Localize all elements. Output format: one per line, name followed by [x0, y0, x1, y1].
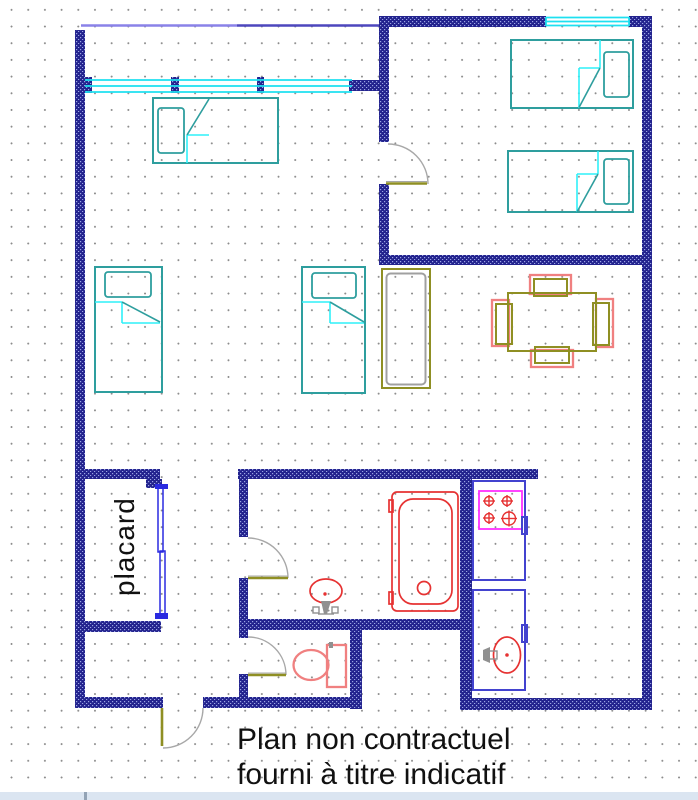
wardrobe-outline	[382, 269, 430, 388]
blanket-fold	[577, 174, 598, 212]
faucet-handle-right	[332, 607, 338, 613]
wall-right	[642, 16, 652, 710]
closet-door-cap-bottom	[155, 613, 168, 619]
bed-middle-left	[95, 267, 162, 392]
wall-left	[75, 30, 85, 708]
pillow	[312, 273, 356, 298]
kitchen-upper-unit	[473, 481, 527, 580]
dining-set	[492, 275, 613, 367]
wall-mid-left	[85, 469, 160, 479]
bed-top-left	[153, 98, 278, 163]
floor-plan-drawing: placard Plan non contractuel fourni à ti…	[0, 0, 698, 800]
disclaimer-line-2: fourni à titre indicatif	[237, 758, 506, 791]
door-arc	[248, 637, 286, 675]
chair-right	[596, 299, 613, 347]
closet-sliding-door	[155, 484, 168, 619]
wall-bath-upper	[239, 479, 248, 537]
closet-door-panel-1	[158, 487, 163, 552]
faucet-handle-left	[313, 607, 319, 613]
chair-left	[492, 300, 509, 346]
window-left-band	[85, 80, 352, 92]
toilet-tank	[327, 645, 346, 687]
wall-closet-bottom	[85, 621, 161, 632]
pillow	[604, 159, 629, 204]
wall-bedroom-bottom	[379, 255, 652, 265]
bathtub-grip-top	[389, 500, 393, 512]
bed-top-right-2	[508, 151, 633, 212]
kitchen-sink-drain	[505, 653, 509, 657]
blanket-fold	[122, 302, 160, 322]
floor-plan-canvas: placard Plan non contractuel fourni à ti…	[0, 0, 698, 800]
wall-mid-right	[238, 469, 538, 479]
toilet	[294, 642, 347, 687]
wall-top-a	[379, 16, 546, 27]
bed-top-right-1	[511, 40, 633, 108]
window-top-right	[546, 17, 629, 26]
door-bathroom	[248, 538, 288, 578]
wall-bedroom-left-lower	[379, 184, 389, 265]
bathtub-drain	[418, 582, 431, 595]
bathroom-sink	[310, 579, 342, 614]
bathtub-outline	[392, 492, 458, 611]
bottom-bar	[0, 792, 698, 800]
disclaimer-line-1: Plan non contractuel	[237, 723, 511, 756]
wall-bathroom-bottom	[243, 619, 460, 630]
blanket-fold	[330, 302, 364, 322]
kitchen-cabinet-stove	[473, 481, 525, 580]
bottom-edge-bar	[0, 792, 698, 800]
wall-wc-stub	[239, 630, 248, 638]
door-arc	[248, 538, 288, 578]
toilet-bowl	[294, 650, 329, 680]
door-bedroom	[386, 144, 428, 184]
chair-bottom	[531, 350, 573, 367]
wall-bottom-mid	[203, 697, 362, 708]
wall-bedroom-left-upper	[379, 16, 389, 142]
bottom-bar-tick	[84, 792, 87, 800]
door-arc	[163, 708, 203, 748]
blanket-fold	[579, 68, 600, 108]
door-entry	[162, 708, 203, 748]
wall-bottom-left	[75, 697, 163, 708]
blanket-fold	[187, 99, 209, 135]
pillow	[105, 272, 151, 297]
wall-window-stub	[349, 80, 380, 91]
wardrobe	[382, 269, 430, 388]
bathtub-inner	[399, 499, 452, 604]
wall-bottom-kitchen	[460, 698, 652, 710]
sink-basin	[310, 579, 342, 603]
bed-middle-center	[302, 267, 365, 393]
pillow	[604, 52, 629, 97]
dining-table	[508, 293, 596, 351]
closet-label: placard	[109, 497, 140, 596]
bathtub	[389, 492, 458, 611]
bed-frame	[508, 151, 633, 212]
wall-kitchen-divider	[460, 479, 472, 709]
closet-door-cap-top	[155, 484, 168, 489]
sink-drain	[323, 592, 326, 595]
pillow	[158, 108, 184, 153]
closet-door-panel-2	[160, 551, 165, 617]
door-arc	[388, 144, 428, 184]
wardrobe-inner	[387, 274, 426, 385]
bathtub-grip-bottom	[389, 592, 393, 604]
toilet-button	[329, 642, 333, 648]
stove-burners	[483, 495, 517, 527]
faucet-icon	[321, 601, 331, 614]
kitchen-lower-unit	[473, 590, 527, 690]
stovetop	[479, 491, 522, 529]
door-wc	[248, 637, 286, 675]
chair-top	[530, 275, 571, 294]
